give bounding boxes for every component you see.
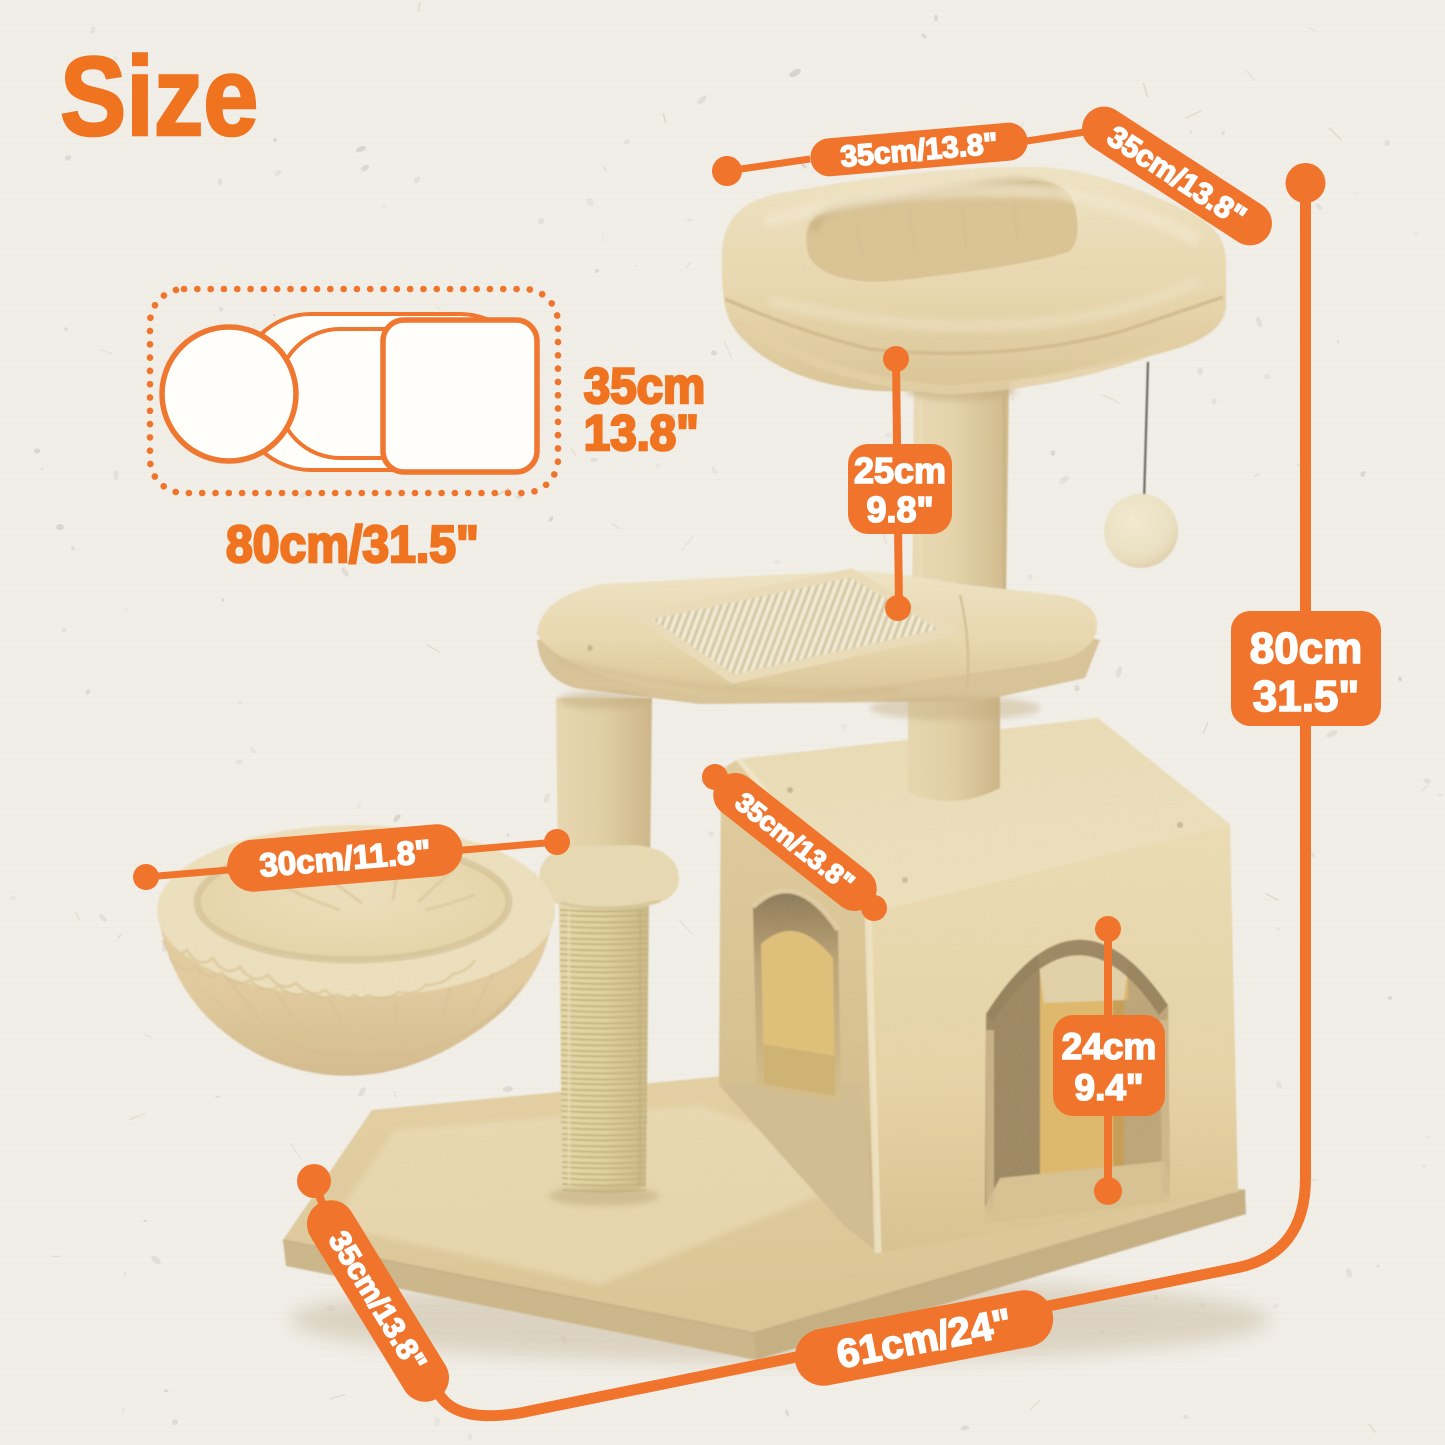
svg-text:25cm: 25cm (854, 450, 946, 491)
svg-text:24cm: 24cm (1062, 1026, 1157, 1067)
svg-text:80cm/31.5": 80cm/31.5" (226, 515, 479, 573)
svg-text:13.8": 13.8" (584, 406, 699, 461)
svg-text:Size: Size (60, 34, 258, 159)
svg-text:9.8": 9.8" (866, 489, 933, 530)
svg-text:80cm: 80cm (1250, 624, 1363, 673)
svg-text:31.5": 31.5" (1253, 672, 1360, 721)
svg-text:9.4": 9.4" (1075, 1067, 1144, 1108)
